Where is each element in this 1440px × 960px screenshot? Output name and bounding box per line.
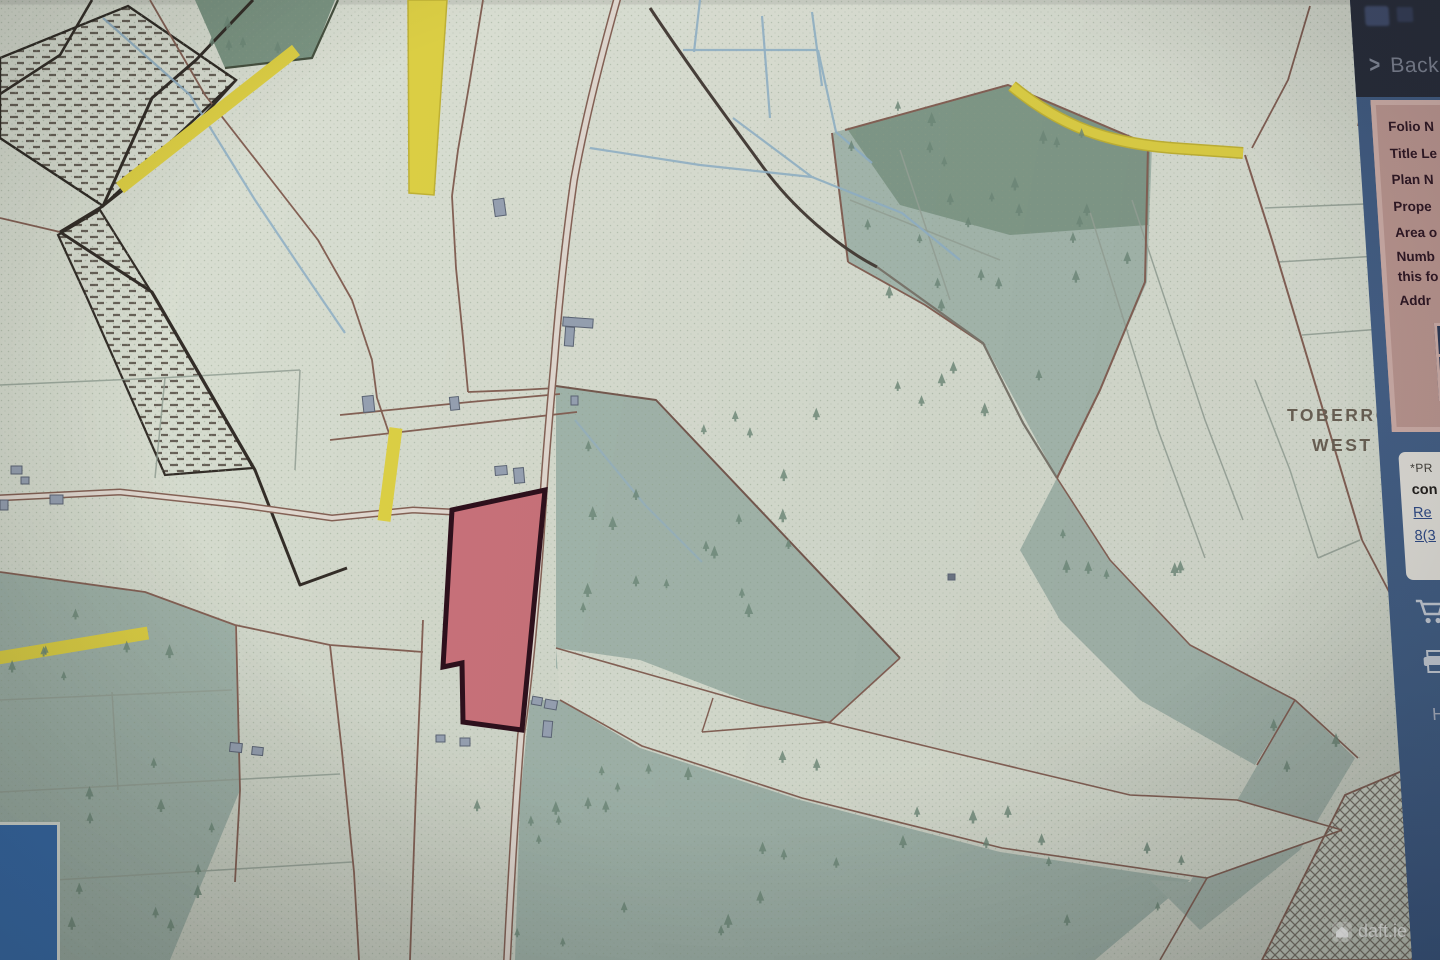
folio-row-plan-number: Plan N	[1391, 167, 1440, 194]
back-label: Back	[1390, 54, 1440, 78]
secondary-button[interactable]	[1436, 357, 1440, 401]
folio-row-title-level: Title Le	[1389, 141, 1440, 168]
folio-row-address: Addr	[1399, 288, 1440, 315]
browser-icon-blob2	[1396, 7, 1413, 22]
back-button[interactable]: > Back	[1368, 54, 1439, 78]
bottom-left-overlay	[0, 822, 60, 960]
highlight-button[interactable]: Hig	[1434, 323, 1440, 357]
daft-house-icon	[1332, 922, 1352, 942]
help-link[interactable]: He	[1432, 704, 1440, 725]
daft-watermark: daft.ie	[1332, 921, 1407, 942]
register-link[interactable]: Re	[1413, 505, 1440, 521]
daft-watermark-text: daft.ie	[1358, 921, 1407, 942]
land-registry-map[interactable]: TOBERROE WEST	[0, 0, 1440, 960]
section-link[interactable]: 8(3	[1414, 528, 1440, 544]
browser-icon-blob	[1364, 6, 1389, 26]
folio-row-property: Prope	[1393, 194, 1440, 221]
folio-info-panel: Folio N Title Le Plan N Prope Area o Num…	[1370, 100, 1440, 432]
panel-buttons: Hig	[1434, 323, 1440, 401]
sidebar-header: > Back	[1350, 0, 1440, 97]
cart-icon[interactable]	[1414, 598, 1440, 626]
chevron-right-icon: >	[1368, 52, 1381, 80]
folio-row-this-folio: this fo	[1397, 267, 1440, 288]
notice-panel: *PR con Re 8(3	[1398, 452, 1440, 580]
notice-conditions: con	[1411, 482, 1440, 498]
folio-row-folio-number: Folio N	[1387, 114, 1440, 141]
folio-row-number-of: Numb	[1396, 247, 1440, 268]
screenshot-root: TOBERROE WEST > Back Folio N Title Le Pl…	[0, 0, 1440, 960]
photo-vignette	[0, 0, 1440, 960]
printer-icon[interactable]	[1421, 650, 1440, 674]
folio-row-area: Area o	[1394, 220, 1440, 247]
notice-disclaimer: *PR	[1410, 461, 1440, 475]
